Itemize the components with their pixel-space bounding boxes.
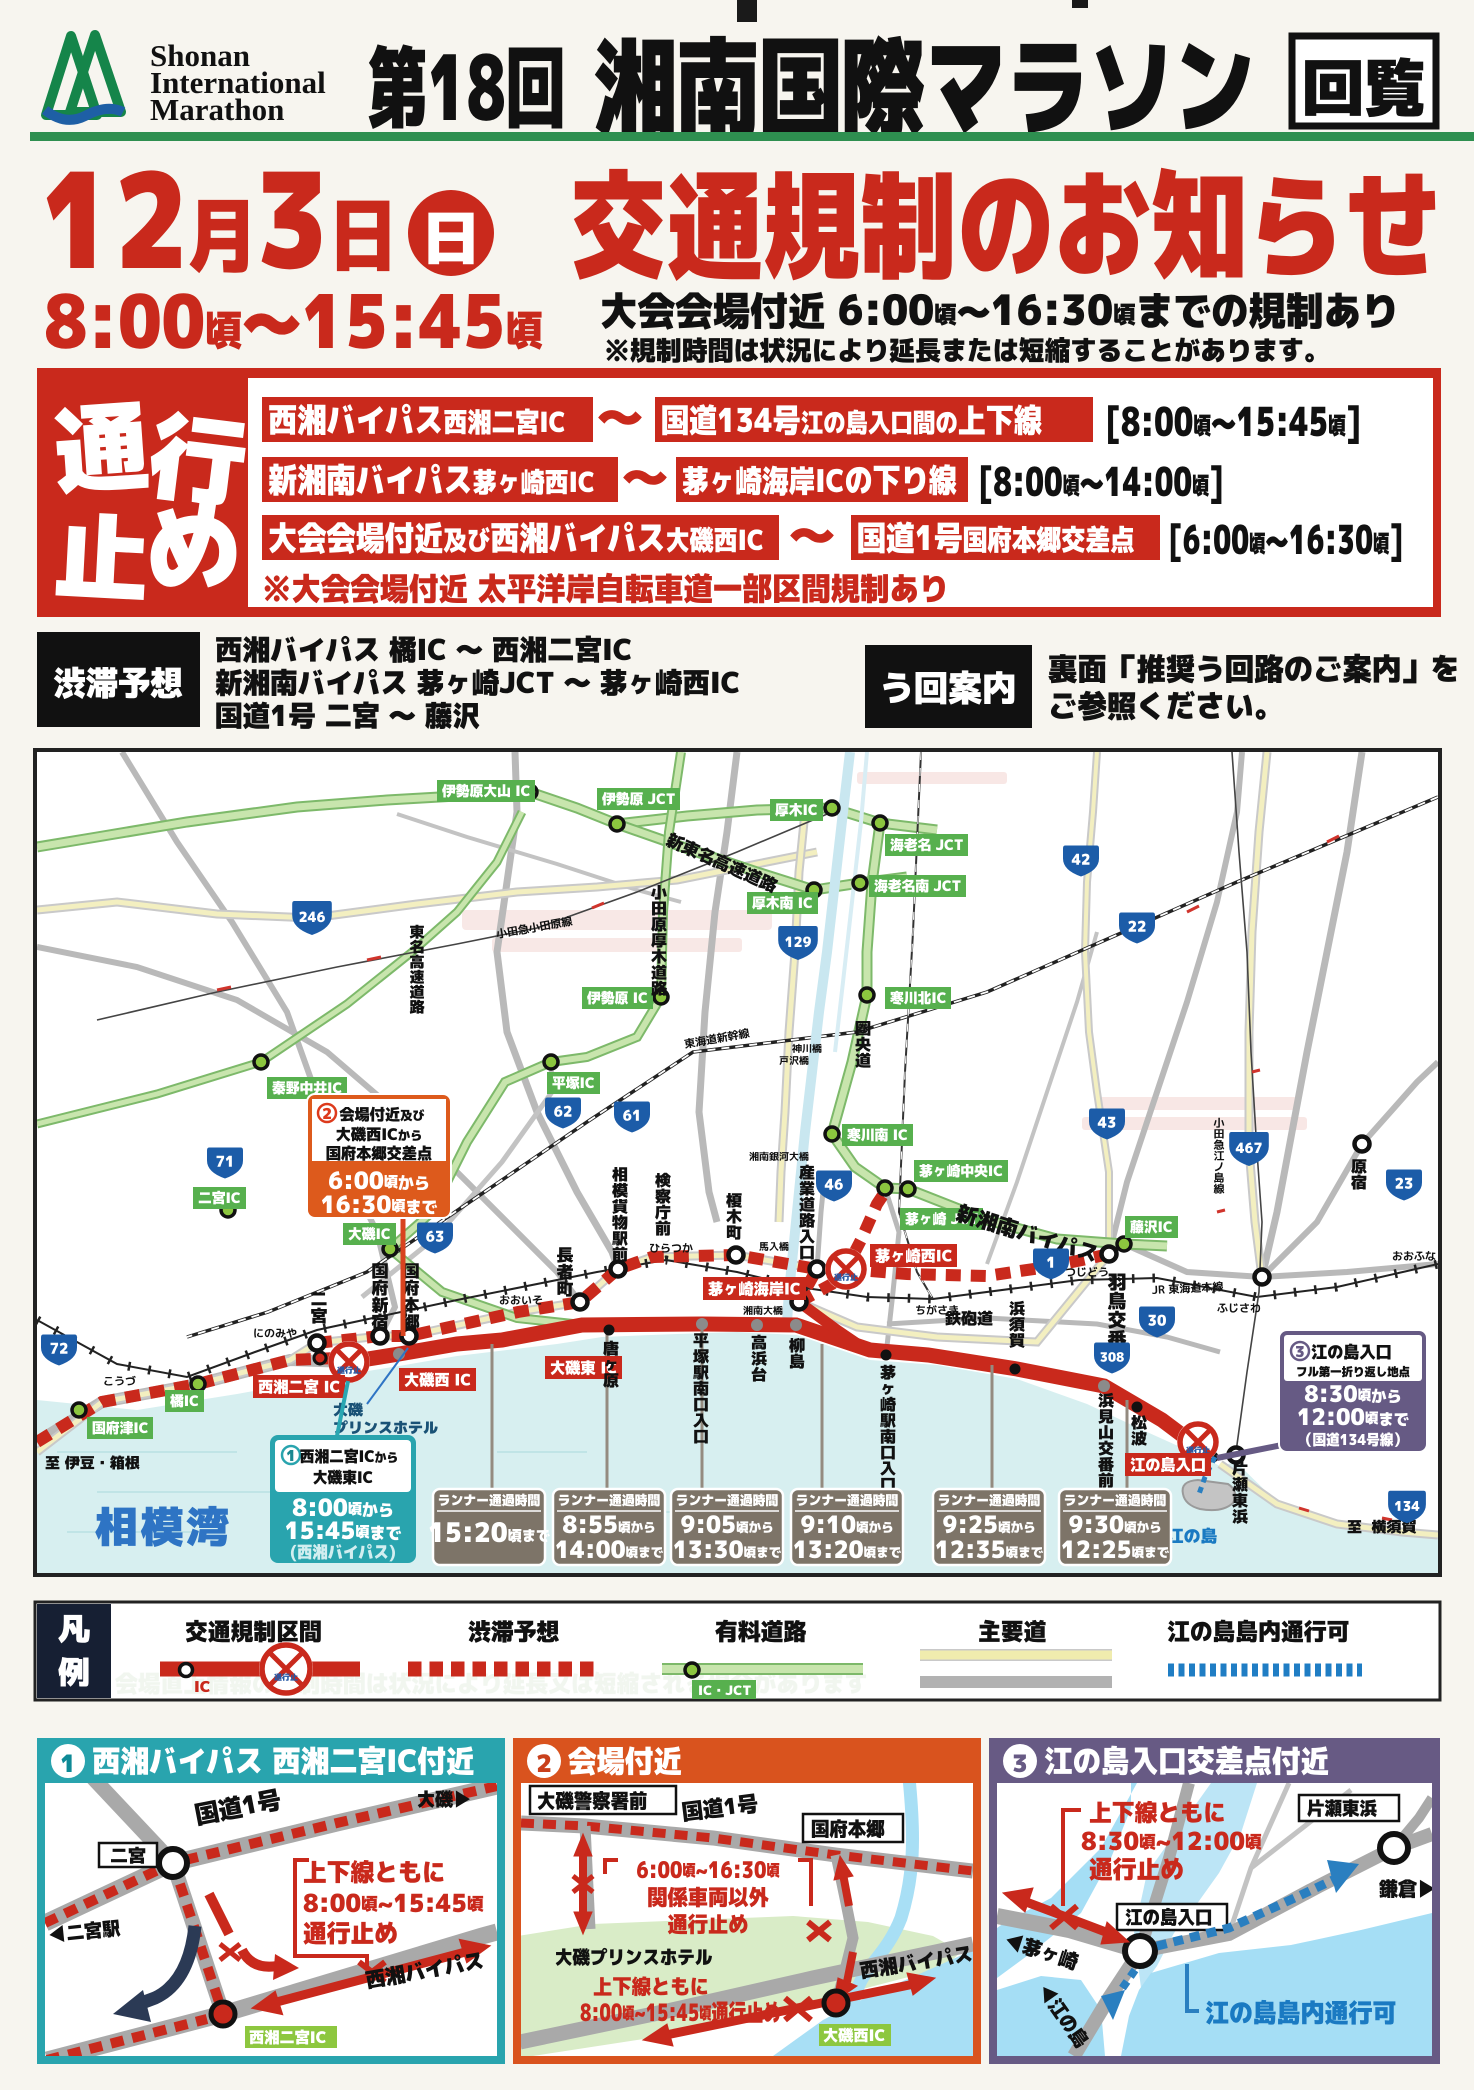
svg-text:Marathon: Marathon — [150, 92, 284, 127]
